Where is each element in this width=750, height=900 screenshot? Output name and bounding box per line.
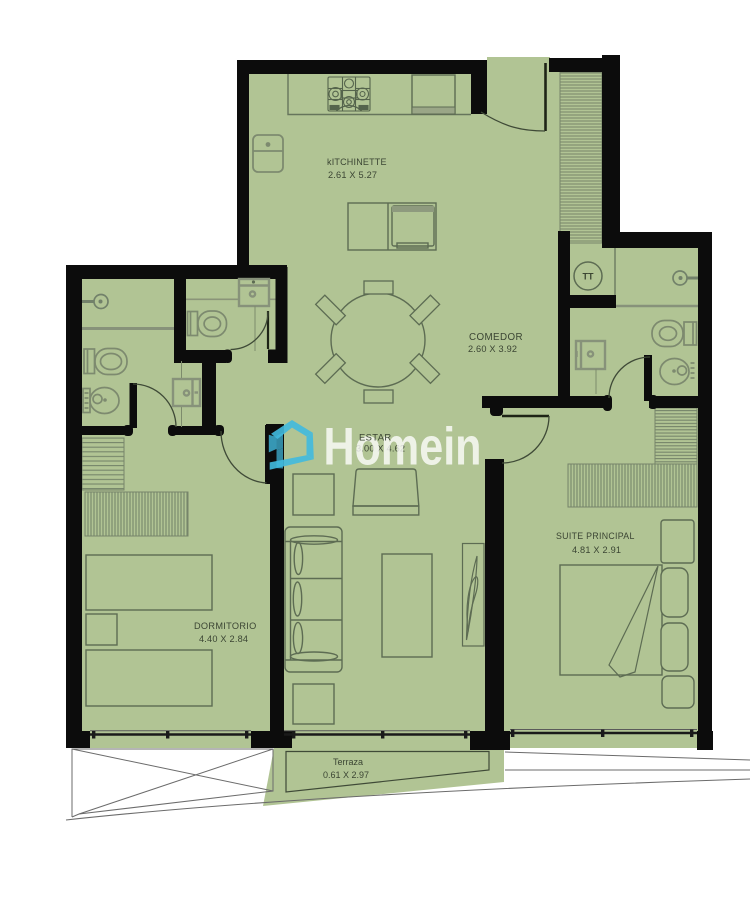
svg-text:TT: TT [583, 272, 594, 282]
svg-text:DORMITORIO: DORMITORIO [194, 621, 257, 631]
svg-text:2.61 X 5.27: 2.61 X 5.27 [328, 170, 377, 180]
svg-text:Terraza: Terraza [333, 757, 363, 767]
svg-text:kITCHINETTE: kITCHINETTE [327, 157, 387, 167]
svg-text:4.40 X 2.84: 4.40 X 2.84 [199, 634, 248, 644]
svg-text:COMEDOR: COMEDOR [469, 332, 523, 343]
svg-text:4.81 X 2.91: 4.81 X 2.91 [572, 545, 621, 555]
svg-text:0.61 X 2.97: 0.61 X 2.97 [323, 770, 369, 780]
svg-text:2.60 X 3.92: 2.60 X 3.92 [468, 344, 517, 354]
svg-text:SUITE PRINCIPAL: SUITE PRINCIPAL [556, 531, 635, 541]
svg-text:ESTAR: ESTAR [359, 432, 392, 443]
svg-text:Homein: Homein [324, 418, 482, 477]
